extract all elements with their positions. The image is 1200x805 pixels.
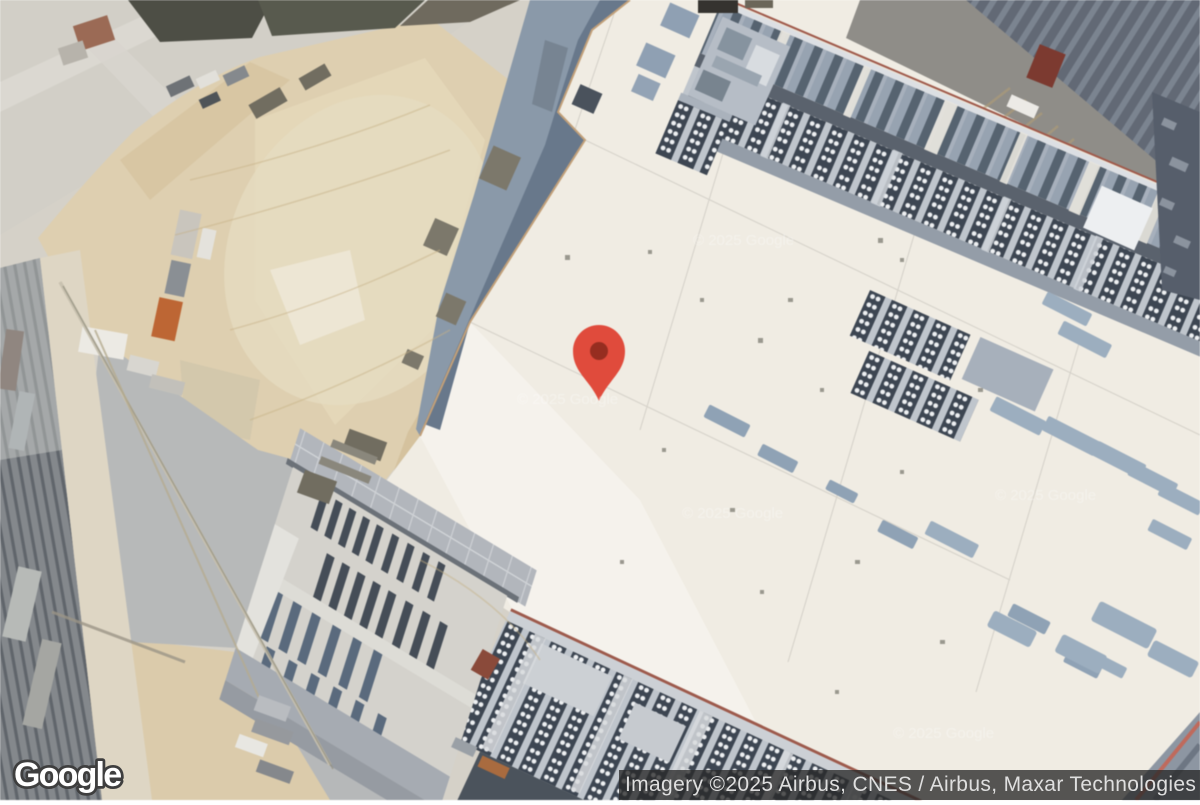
svg-text:© 2025 Google: © 2025 Google (995, 487, 1096, 504)
svg-text:© 2025 Google: © 2025 Google (682, 505, 783, 522)
svg-text:© 2025 Google: © 2025 Google (517, 391, 618, 408)
svg-text:© 2025 Google: © 2025 Google (693, 232, 794, 249)
svg-text:© 2025 Google: © 2025 Google (893, 725, 994, 742)
svg-text:Google: Google (14, 756, 121, 794)
